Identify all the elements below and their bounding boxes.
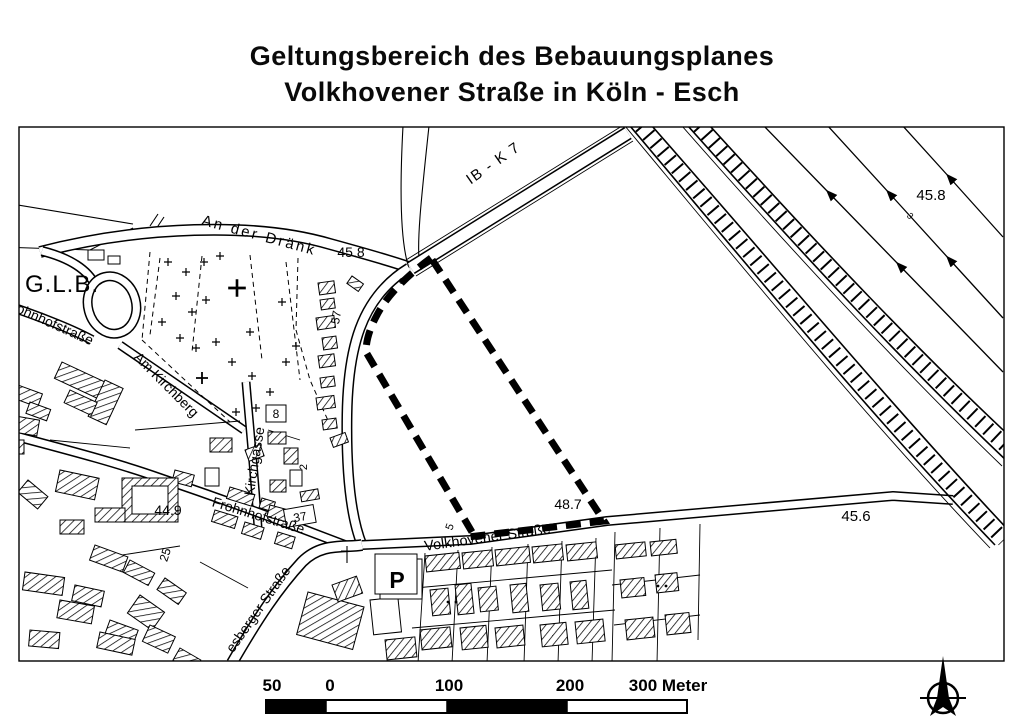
plan-sheet: Geltungsbereich des Bebauungsplanes Volk… xyxy=(0,0,1024,723)
map-content: An der Dränk 45.8 IB - K 7 45.8 G.L.B. F… xyxy=(0,125,1024,672)
house-number-25: 25 xyxy=(156,546,174,563)
parking-symbol: P xyxy=(389,567,404,593)
street-label-frohnhofstrasse-upper: Frohnhofstraße xyxy=(2,295,96,349)
elevation-label-45-6: 45.6 xyxy=(841,508,870,525)
street-label-kirchgasse: Kirchgasse xyxy=(241,426,268,497)
house-number-57: 57 xyxy=(328,309,344,325)
house-number-2: 2 xyxy=(298,464,310,470)
scale-label-50: 50 xyxy=(263,676,282,695)
house-number-5: 5 xyxy=(443,522,456,532)
house-number-8: 8 xyxy=(266,405,286,422)
north-letter: N xyxy=(940,695,946,705)
scale-label-200: 200 xyxy=(556,676,584,695)
street-label-am-kirchberg: Am Kirchberg xyxy=(131,349,202,420)
scale-label-100: 100 xyxy=(435,676,463,695)
railway-embankment xyxy=(625,126,1024,548)
elevation-label-45-8-northeast: 45.8 xyxy=(916,187,945,204)
road-label-ib-k7: IB - K 7 xyxy=(463,139,524,189)
elevation-label-45-8-junction: 45.8 xyxy=(337,244,364,260)
area-label-glb: G.L.B. xyxy=(25,271,99,298)
scale-label-0: 0 xyxy=(325,676,334,695)
scale-bar: 50 0 100 200 300 Meter xyxy=(263,676,708,713)
elevation-label-44-9: 44.9 xyxy=(154,502,181,518)
map-canvas: An der Dränk 45.8 IB - K 7 45.8 G.L.B. F… xyxy=(0,0,1024,723)
elevation-label-48-7: 48.7 xyxy=(554,496,581,512)
scale-label-300-meter: 300 Meter xyxy=(629,676,708,695)
north-arrow-icon: N xyxy=(920,656,966,716)
street-label-esberger-strasse: esberger Straße xyxy=(222,563,293,655)
svg-text:8: 8 xyxy=(273,407,280,421)
